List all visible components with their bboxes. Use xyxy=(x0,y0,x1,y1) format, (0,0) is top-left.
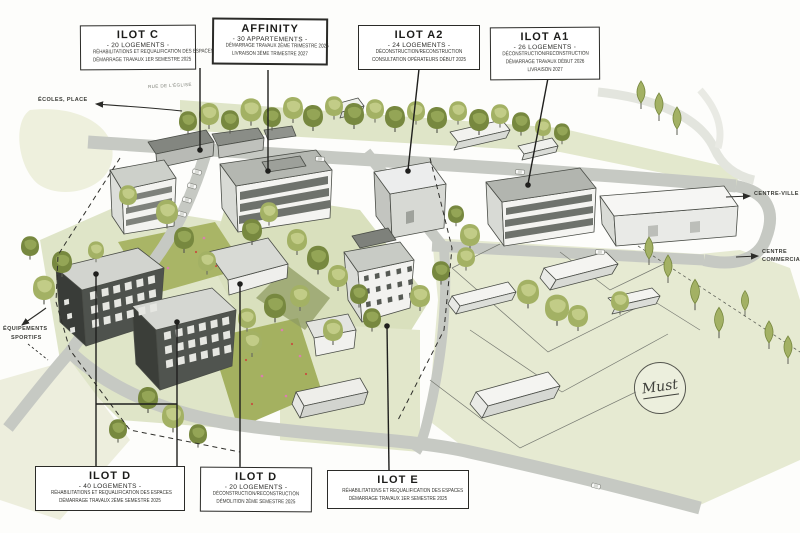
lot-title: ILOT D xyxy=(203,471,309,484)
lot-subtitle: - 24 LOGEMENTS - xyxy=(361,42,477,49)
lot-detail: RÉHABILITATIONS ET REQUALIFICATION DES E… xyxy=(51,490,169,498)
annotation-ecoles-place: ÉCOLES, PLACE xyxy=(38,97,88,103)
lot-detail: CONSULTATION OPÉRATEURS DÉBUT 2025 xyxy=(371,57,466,65)
lot-title: ILOT A1 xyxy=(493,31,597,44)
building-ilot-a1 xyxy=(486,168,596,246)
building-ilot-a2 xyxy=(374,162,446,238)
site-illustration xyxy=(0,0,800,533)
dashed-hint-line xyxy=(28,344,48,360)
lot-detail: DÉMARRAGE TRAVAUX 1ER SEMESTRE 2025 xyxy=(342,496,454,504)
annotation-equipements-1: ÉQUIPEMENTS xyxy=(3,326,47,332)
lot-title: AFFINITY xyxy=(216,23,324,36)
lot-detail: DÉCONSTRUCTION/RECONSTRUCTION xyxy=(371,49,466,57)
lot-detail: LIVRAISON 3ÈME TRIMESTRE 2027 xyxy=(226,51,315,60)
label-ilot-d-ouest: ILOT D - 40 LOGEMENTS - RÉHABILITATIONS … xyxy=(35,466,185,511)
label-ilot-e: ILOT E RÉHABILITATIONS ET REQUALIFICATIO… xyxy=(327,470,469,509)
lot-detail: DÉMOLITION 2ÈME SEMESTRE 2025 xyxy=(212,499,299,508)
arrow-left-icon xyxy=(96,104,182,111)
annotation-equipements-2: SPORTIFS xyxy=(11,335,42,341)
lot-detail: DÉMARRAGE TRAVAUX 2ÈME SEMESTRE 2025 xyxy=(51,498,169,506)
arrow-down-left-icon xyxy=(22,308,46,325)
lot-detail: DÉMARRAGE TRAVAUX 1ER SEMESTRE 2025 xyxy=(93,57,183,66)
lot-title: ILOT D xyxy=(38,470,182,482)
lot-title: ILOT A2 xyxy=(361,29,477,41)
label-ilot-a2: ILOT A2 - 24 LOGEMENTS - DÉCONSTRUCTION/… xyxy=(358,25,480,70)
lot-detail: RÉHABILITATIONS ET REQUALIFICATION DES E… xyxy=(342,488,454,496)
lot-subtitle: - 40 LOGEMENTS - xyxy=(38,483,182,490)
label-ilot-c: ILOT C - 20 LOGEMENTS - RÉHABILITATIONS … xyxy=(80,25,196,71)
lot-title: ILOT E xyxy=(330,474,466,486)
building-affinity xyxy=(220,150,332,232)
label-ilot-a1: ILOT A1 - 26 LOGEMENTS - DÉCONSTRUCTION/… xyxy=(490,27,600,81)
site-plan: ILOT C - 20 LOGEMENTS - RÉHABILITATIONS … xyxy=(0,0,800,533)
building-commercial xyxy=(600,186,738,246)
lot-title: ILOT C xyxy=(83,29,193,42)
annotation-centre-ville: CENTRE-VILLE xyxy=(754,191,799,197)
lot-detail: LIVRAISON 2027 xyxy=(502,67,587,76)
annotation-centre-commercial-1: CENTRE xyxy=(762,249,787,255)
label-affinity: AFFINITY - 30 APPARTEMENTS - DÉMARRAGE T… xyxy=(212,17,328,65)
annotation-centre-commercial-2: COMMERCIAL... xyxy=(762,257,800,263)
label-ilot-d-est: ILOT D - 20 LOGEMENTS - DÉCONSTRUCTION/R… xyxy=(200,467,312,513)
signature-text: Must xyxy=(641,377,679,400)
